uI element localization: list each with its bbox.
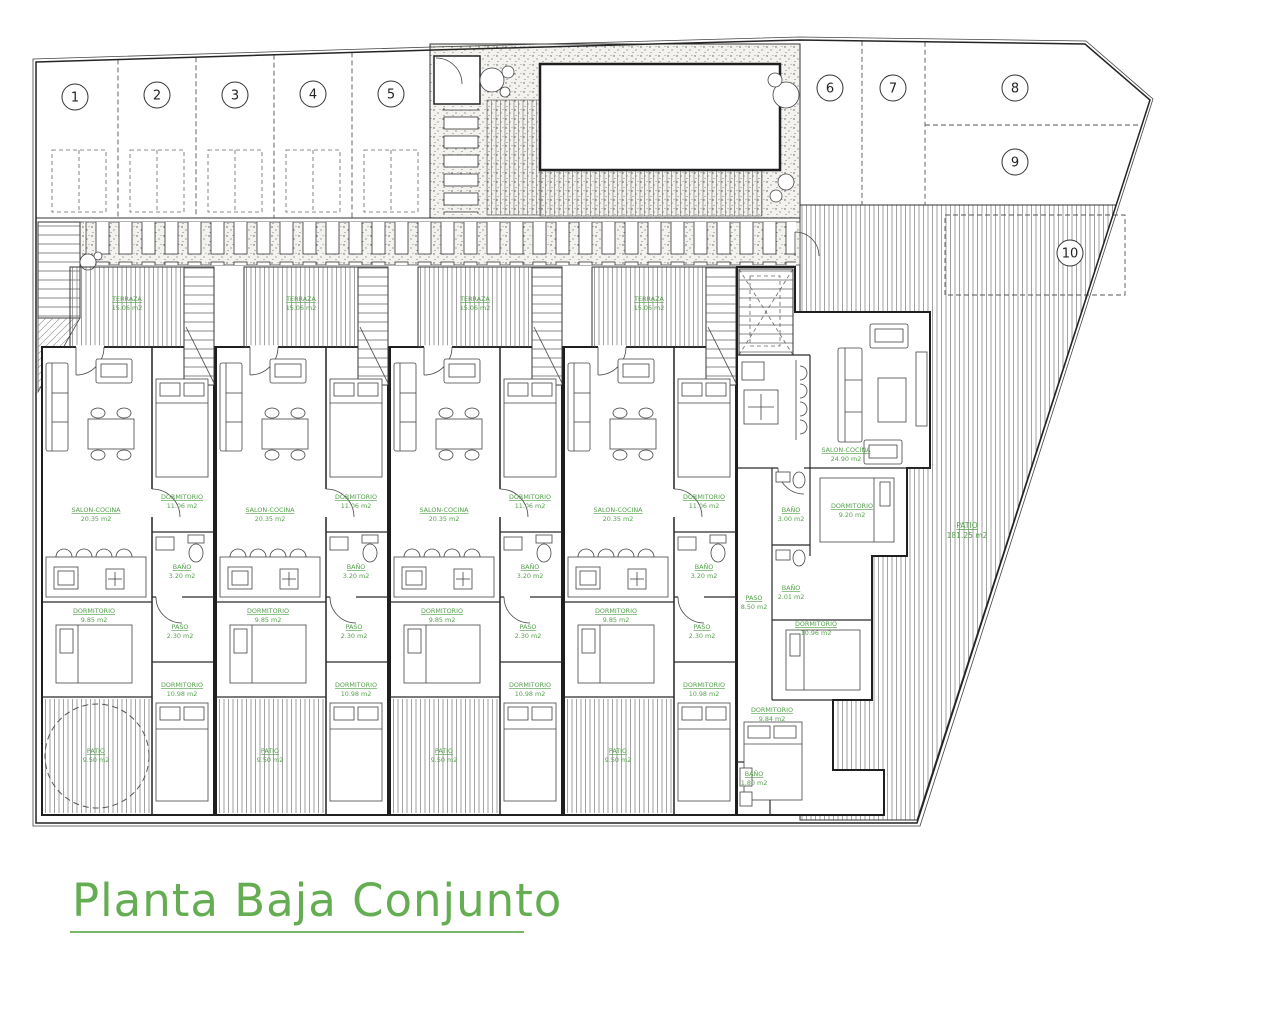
plot-2-marker: 2 [144, 82, 170, 108]
svg-text:6: 6 [826, 82, 834, 97]
room-label-bano-3: BAÑO [745, 769, 764, 778]
pool-deck-hatch [487, 100, 540, 215]
floor-plan-page: TERRAZA 15.06 m2 SALON-COCINA 20.35 m2 D… [0, 0, 1280, 1024]
shelf [916, 352, 927, 426]
walkway-stones [84, 222, 796, 265]
plot-1-marker: 1 [62, 84, 88, 110]
svg-text:4: 4 [309, 88, 317, 103]
pool-deck-hatch [540, 170, 762, 216]
plots-6-9: 6 7 8 9 [800, 41, 1138, 205]
svg-text:10: 10 [1062, 247, 1079, 262]
svg-text:9: 9 [1011, 156, 1019, 171]
plot-7-marker: 7 [880, 75, 906, 101]
plot-3-marker: 3 [222, 82, 248, 108]
floor-plan-drawing: TERRAZA 15.06 m2 SALON-COCINA 20.35 m2 D… [0, 0, 1280, 1024]
coffee-table [878, 378, 906, 422]
bed [786, 630, 860, 690]
room-area-dormitorio-a: 9.20 m2 [839, 511, 866, 519]
bed [820, 478, 894, 542]
plot-9-marker: 9 [1002, 149, 1028, 175]
pool-area [430, 44, 800, 218]
plot-4-marker: 4 [300, 81, 326, 107]
room-label-dormitorio-c: DORMITORIO [751, 706, 793, 714]
unit-module-1 [42, 267, 214, 815]
page-title: Planta Baja Conjunto [72, 874, 562, 927]
room-label-paso: PASO [746, 594, 763, 602]
room-area-dormitorio-b: 10.96 m2 [801, 629, 832, 637]
room-label-salon: SALON-COCINA [822, 446, 872, 454]
room-label-bano-2: BAÑO [782, 583, 801, 592]
parking-spaces [52, 150, 418, 212]
plot-6-marker: 6 [817, 75, 843, 101]
swimming-pool [540, 64, 780, 170]
room-label-dormitorio-b: DORMITORIO [795, 620, 837, 628]
room-area-bano-2: 2.01 m2 [778, 593, 805, 601]
plot-8-marker: 8 [1002, 75, 1028, 101]
bed [744, 722, 802, 800]
room-area-bano-1: 3.00 m2 [778, 515, 805, 523]
armchair [870, 324, 908, 348]
svg-text:1: 1 [71, 91, 79, 106]
svg-text:5: 5 [387, 88, 395, 103]
svg-text:2: 2 [153, 89, 161, 104]
room-area-garden: 181.25 m2 [947, 531, 988, 540]
room-label-bano-1: BAÑO [782, 505, 801, 514]
unit-module-4 [564, 267, 736, 815]
sofa [838, 348, 862, 442]
room-label-garden: PATIO [956, 521, 977, 530]
room-area-dormitorio-c: 9.84 m2 [759, 715, 786, 723]
plot-5-marker: 5 [378, 81, 404, 107]
svg-text:7: 7 [889, 82, 897, 97]
unit-module-3 [390, 267, 562, 815]
unit-module-2 [216, 267, 388, 815]
room-area-bano-3: 1.80 m2 [741, 779, 768, 787]
svg-text:3: 3 [231, 89, 239, 104]
stepping-stones-column [436, 108, 480, 214]
room-label-dormitorio-a: DORMITORIO [831, 502, 873, 510]
pool-house [434, 56, 480, 104]
room-area-paso: 8.50 m2 [741, 603, 768, 611]
svg-text:8: 8 [1011, 82, 1019, 97]
room-area-salon: 24.90 m2 [831, 455, 862, 463]
